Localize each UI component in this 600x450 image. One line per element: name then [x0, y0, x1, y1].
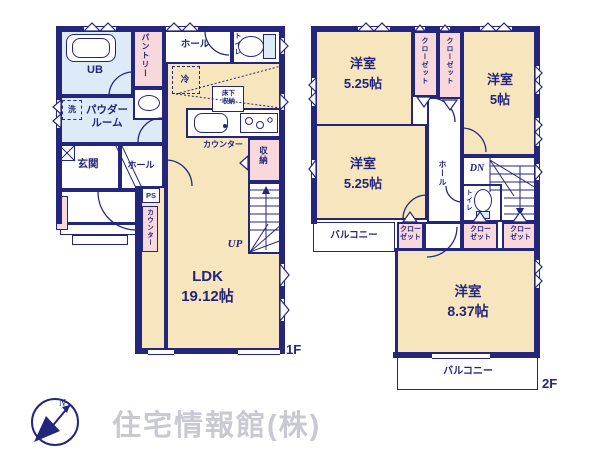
- label-dn: DN: [466, 163, 488, 175]
- label-storage-1f: 収納: [259, 146, 268, 165]
- window-1f-bottom-2: [238, 349, 280, 355]
- label-2f-tag: 2F: [542, 376, 568, 392]
- label-2f-525mid-size: 5.25帖: [330, 176, 396, 192]
- toilet-1f-tank: [263, 34, 276, 59]
- label-1f-tag: 1F: [286, 342, 312, 358]
- basin-sink: [138, 95, 160, 111]
- kitchen-sink: [194, 113, 228, 133]
- label-2f-525top-size: 5.25帖: [330, 76, 396, 92]
- label-balcony-bottom: バルコニー: [437, 366, 499, 378]
- kitchen-stove: [240, 113, 278, 133]
- wall-ldk-left: [135, 186, 141, 354]
- window-1f-right-2: [280, 94, 284, 110]
- window-2f-right-1: [535, 66, 539, 94]
- label-wash: 洗: [62, 100, 82, 120]
- label-closet-2: クローゼット: [446, 37, 453, 85]
- label-2f-5-size: 5帖: [468, 92, 532, 108]
- label-counter-kitchen: カウンター: [193, 140, 253, 150]
- label-2f-837: 洋室: [432, 284, 504, 300]
- compass-north-label: N: [58, 398, 67, 409]
- window-2f-bottom-1: [432, 353, 490, 359]
- window-1f-right-3: [280, 264, 284, 286]
- window-2f-right-4: [535, 260, 539, 288]
- label-powder: パウダールーム: [84, 104, 130, 129]
- window-1f-left-1: [57, 100, 61, 128]
- company-watermark: 住宅情報館(株): [112, 402, 321, 444]
- label-ldk-size: 19.12帖: [150, 288, 265, 306]
- label-closet-3: クローゼット: [399, 226, 422, 243]
- room-2f-837: [395, 248, 540, 356]
- label-fridge: 冷: [172, 74, 198, 84]
- label-hall-2f: ホール: [438, 160, 446, 187]
- label-2f-525top: 洋室: [330, 56, 396, 72]
- label-toilet-1f: トイレ: [234, 32, 241, 56]
- label-ps: PS: [142, 191, 160, 200]
- window-2f-left-1: [312, 78, 316, 106]
- window-2f-top-4: [440, 27, 450, 31]
- window-1f-right-1: [280, 38, 284, 54]
- toilet-1f-bowl: [238, 36, 264, 57]
- label-hall-1f: ホール: [118, 160, 164, 171]
- room-porch: [58, 190, 138, 224]
- doorway-2f: [424, 222, 462, 250]
- label-ldk: LDK: [150, 268, 265, 286]
- window-1f-top-2: [166, 27, 198, 31]
- label-2f-5: 洋室: [468, 72, 532, 88]
- label-closet-5: クローゼット: [509, 226, 532, 243]
- label-underfloor: 床下収納: [221, 90, 236, 106]
- label-hall-top: ホール: [170, 39, 220, 50]
- porch-step-1: [60, 224, 138, 235]
- porch-step-2: [72, 235, 128, 245]
- compass-icon: N: [32, 398, 78, 445]
- toilet-2f-bowl: [474, 189, 492, 212]
- label-balcony-left: バルコニー: [318, 230, 390, 241]
- label-counter-side: カウンター: [145, 209, 152, 247]
- wall-2f-left: [311, 26, 317, 224]
- label-2f-837-size: 8.37帖: [432, 303, 504, 320]
- bathtub-inner: [72, 38, 110, 58]
- label-ub: UB: [75, 64, 115, 77]
- window-1f-bottom-1: [148, 349, 174, 355]
- toilet-2f-tank: [476, 211, 490, 219]
- window-2f-right-2: [535, 118, 539, 146]
- floorplan-canvas: UB パントリー ホール トイレ 冷 床下収納 洗 パウダールーム カウンター …: [0, 0, 600, 450]
- window-1f-top-1: [84, 27, 116, 31]
- label-pantry: パントリー: [141, 33, 149, 78]
- label-closet-1: クローゼット: [421, 37, 428, 85]
- label-toilet-2f: トイレ: [464, 189, 471, 212]
- room-2f-525-mid: [313, 124, 427, 220]
- window-2f-left-2: [312, 160, 316, 178]
- window-2f-top-3: [415, 27, 425, 31]
- window-2f-top-1: [358, 27, 390, 31]
- window-2f-right-3: [535, 164, 539, 180]
- label-2f-525mid: 洋室: [330, 156, 396, 172]
- label-closet-4: クローゼット: [469, 226, 492, 243]
- window-1f-right-4: [280, 299, 284, 321]
- label-genkan: 玄関: [64, 158, 112, 171]
- window-2f-top-2: [480, 27, 512, 31]
- label-up: UP: [224, 238, 246, 251]
